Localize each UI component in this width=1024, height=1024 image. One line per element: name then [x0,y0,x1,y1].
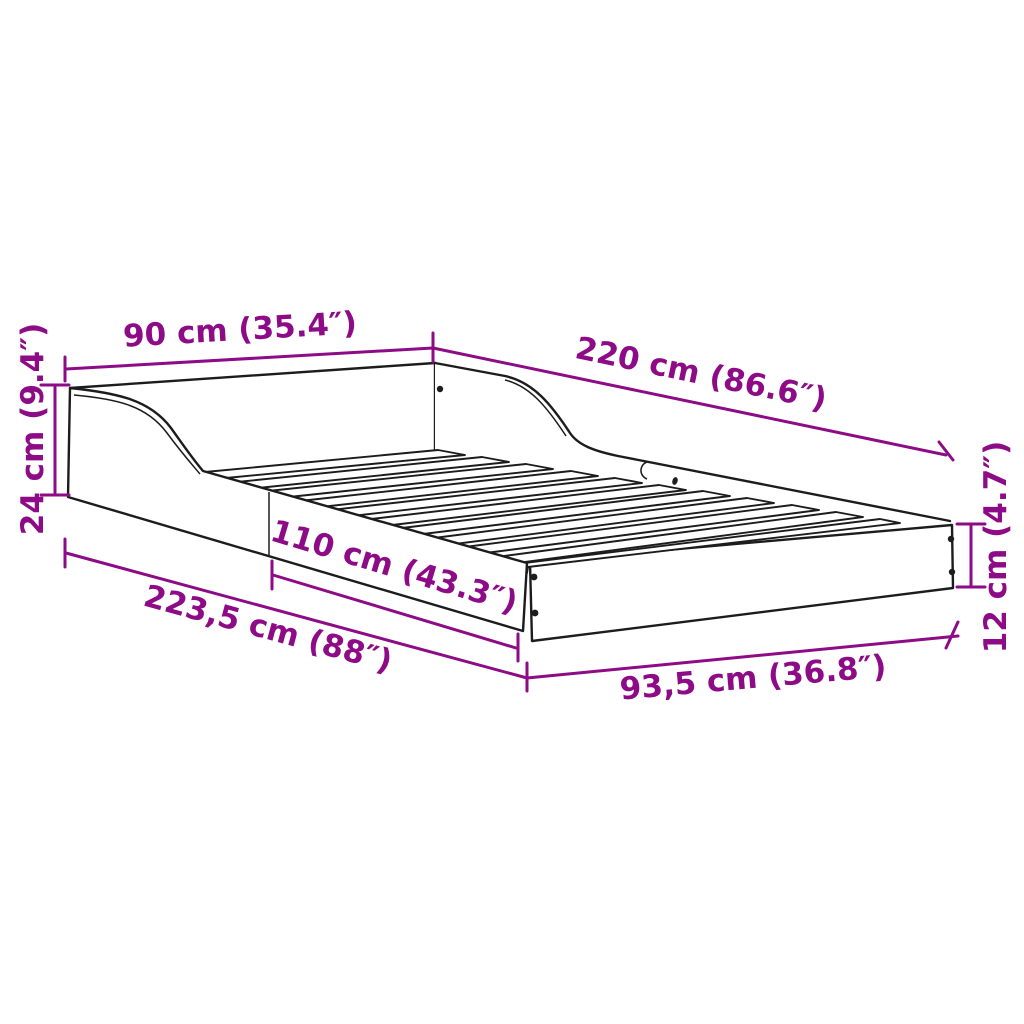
bed-frame-dimension-diagram: 90 cm (35.4″) 220 cm (86.6″) 24 cm (9.4″… [0,0,1024,1024]
dim-label-total-length: 223,5 cm (88″) [140,578,396,680]
dim-label-foot-height: 12 cm (4.7″) [978,441,1014,654]
dimension-foot-height: 12 cm (4.7″) [957,441,1014,654]
dimension-foot-width: 93,5 cm (36.8″) [527,622,958,708]
foot-screw-3 [948,536,954,542]
diagram-canvas: 90 cm (35.4″) 220 cm (86.6″) 24 cm (9.4″… [0,0,1024,1024]
dimension-head-height: 24 cm (9.4″) [15,323,69,536]
dim-tick [939,442,953,460]
headboard-screw [437,386,443,392]
foot-screw-4 [949,569,955,575]
dim-label-head-width: 90 cm (35.4″) [122,305,358,354]
dim-label-head-height: 24 cm (9.4″) [15,323,51,536]
foot-screw-2 [532,610,539,617]
foot-screw-1 [531,574,538,581]
